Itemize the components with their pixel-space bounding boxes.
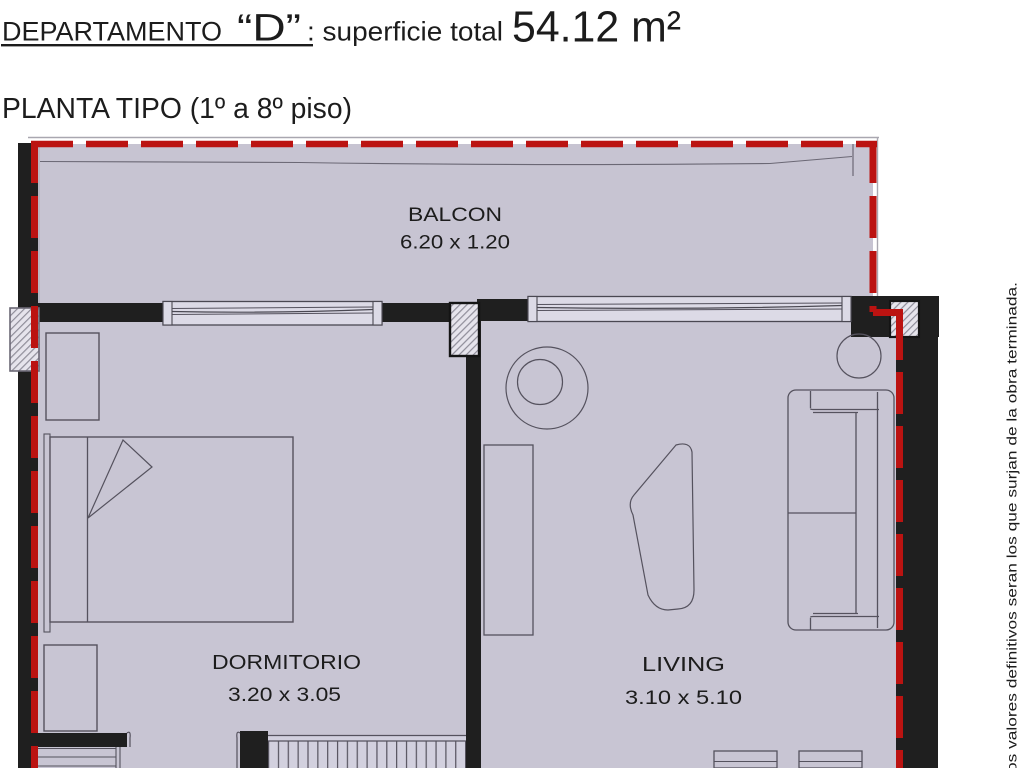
svg-text:3.10 x 5.10: 3.10 x 5.10	[625, 688, 742, 709]
svg-text:os valores definitivos seran l: os valores definitivos seran los que sur…	[1005, 282, 1020, 768]
svg-text:LIVING: LIVING	[642, 654, 725, 676]
svg-text:DEPARTAMENTO: DEPARTAMENTO	[2, 17, 222, 47]
svg-text:PLANTA TIPO (1º a 8º piso): PLANTA TIPO (1º a 8º piso)	[2, 93, 352, 125]
svg-text:DORMITORIO: DORMITORIO	[212, 652, 361, 674]
svg-text:“D”: “D”	[237, 8, 301, 50]
svg-text:6.20 x 1.20: 6.20 x 1.20	[400, 233, 510, 254]
svg-text:BALCON: BALCON	[408, 205, 502, 226]
svg-text:54.12 m²: 54.12 m²	[512, 3, 681, 52]
svg-text:3.20 x 3.05: 3.20 x 3.05	[228, 685, 341, 706]
svg-text:: superficie total: : superficie total	[307, 17, 503, 47]
